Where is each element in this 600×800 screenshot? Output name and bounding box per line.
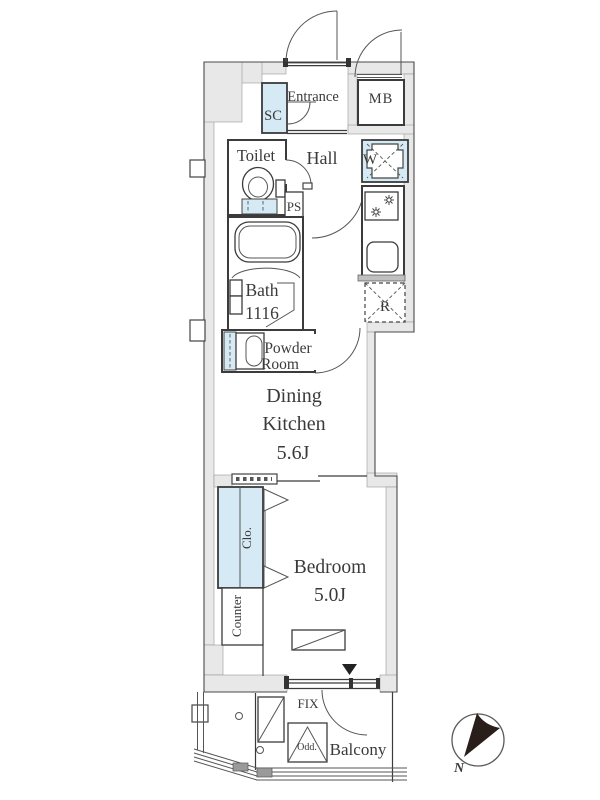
label-hatch: Odd. (297, 742, 317, 753)
entrance-area (283, 11, 351, 134)
label-fridge: R (380, 299, 390, 315)
label-entrance: Entrance (287, 89, 339, 105)
label-washer: W (363, 152, 378, 168)
access-marker (342, 664, 357, 675)
label-bedroom-size: 5.0J (314, 585, 346, 606)
floor-plan-canvas: N Entrance MB SC Toilet Hall W PS Bath 1… (0, 0, 600, 800)
compass-north-label: N (453, 761, 465, 776)
label-bath-size: 1116 (245, 303, 279, 323)
stove (365, 192, 398, 220)
meter-box (355, 30, 404, 125)
label-counter: Counter (229, 594, 244, 637)
entrance-door-arc (286, 11, 337, 62)
label-mb: MB (369, 91, 394, 107)
floor-plan: N Entrance MB SC Toilet Hall W PS Bath 1… (0, 0, 600, 800)
toilet-tank (242, 199, 277, 214)
counter-end (358, 275, 405, 281)
drain (236, 713, 243, 720)
label-sc: SC (264, 108, 282, 124)
label-dk-2: Kitchen (262, 413, 325, 435)
label-toilet: Toilet (237, 146, 276, 165)
label-dk-size: 5.6J (277, 442, 310, 464)
toilet-bowl (243, 168, 274, 201)
label-ps: PS (287, 199, 301, 214)
label-balcony: Balcony (330, 740, 387, 759)
label-bath: Bath (245, 280, 278, 300)
label-dk-1: Dining (266, 385, 322, 407)
inner-door-arc (288, 102, 310, 124)
compass: N (452, 713, 504, 776)
label-bedroom: Bedroom (294, 557, 367, 578)
dk-bedroom-partition (232, 474, 367, 484)
label-hall: Hall (307, 148, 338, 168)
balcony-door-arc (322, 690, 367, 735)
label-powder-1: Powder (264, 340, 312, 357)
label-fix: FIX (298, 696, 320, 711)
label-powder-2: Room (261, 356, 299, 373)
folding-door-mark (264, 566, 288, 588)
kitchen-sink (367, 242, 398, 272)
door-post (283, 58, 288, 67)
bedroom (263, 630, 357, 676)
drain (257, 747, 264, 754)
bathtub (235, 222, 300, 262)
folding-door-mark (264, 489, 288, 511)
label-closet: Clo. (239, 527, 254, 549)
door-post (346, 58, 351, 67)
powder-door-arc (315, 328, 360, 373)
hall-door-arc (312, 186, 364, 238)
